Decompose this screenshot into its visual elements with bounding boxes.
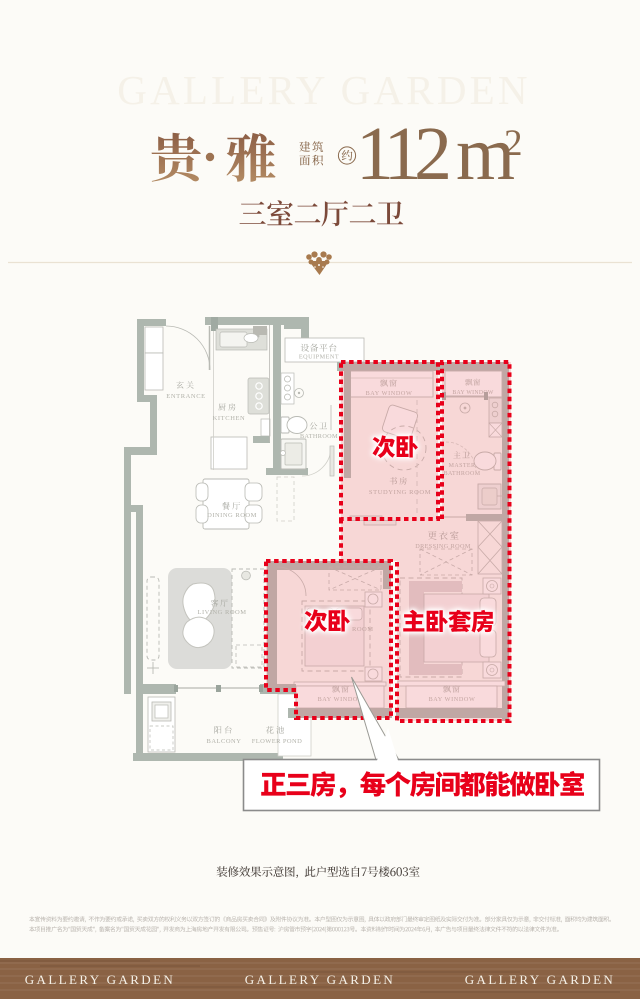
svg-text:KITCHEN: KITCHEN (213, 415, 246, 422)
svg-text:GALLERY GARDEN: GALLERY GARDEN (465, 972, 615, 987)
svg-text:ENTRANCE: ENTRANCE (166, 393, 205, 400)
svg-text:DINING ROOM: DINING ROOM (207, 512, 257, 519)
svg-text:112: 112 (356, 112, 452, 196)
svg-text:EQUIPMENT: EQUIPMENT (299, 354, 339, 361)
svg-text:LIVING ROOM: LIVING ROOM (197, 609, 246, 616)
svg-text:FLOWER POND: FLOWER POND (252, 738, 302, 745)
svg-text:2: 2 (504, 123, 523, 164)
svg-text:GALLERY GARDEN: GALLERY GARDEN (245, 972, 395, 987)
svg-text:GALLERY GARDEN: GALLERY GARDEN (25, 972, 175, 987)
svg-text:GALLERY GARDEN: GALLERY GARDEN (117, 67, 530, 113)
svg-text:BATHROOM: BATHROOM (300, 433, 338, 440)
svg-text:BALCONY: BALCONY (207, 738, 242, 745)
